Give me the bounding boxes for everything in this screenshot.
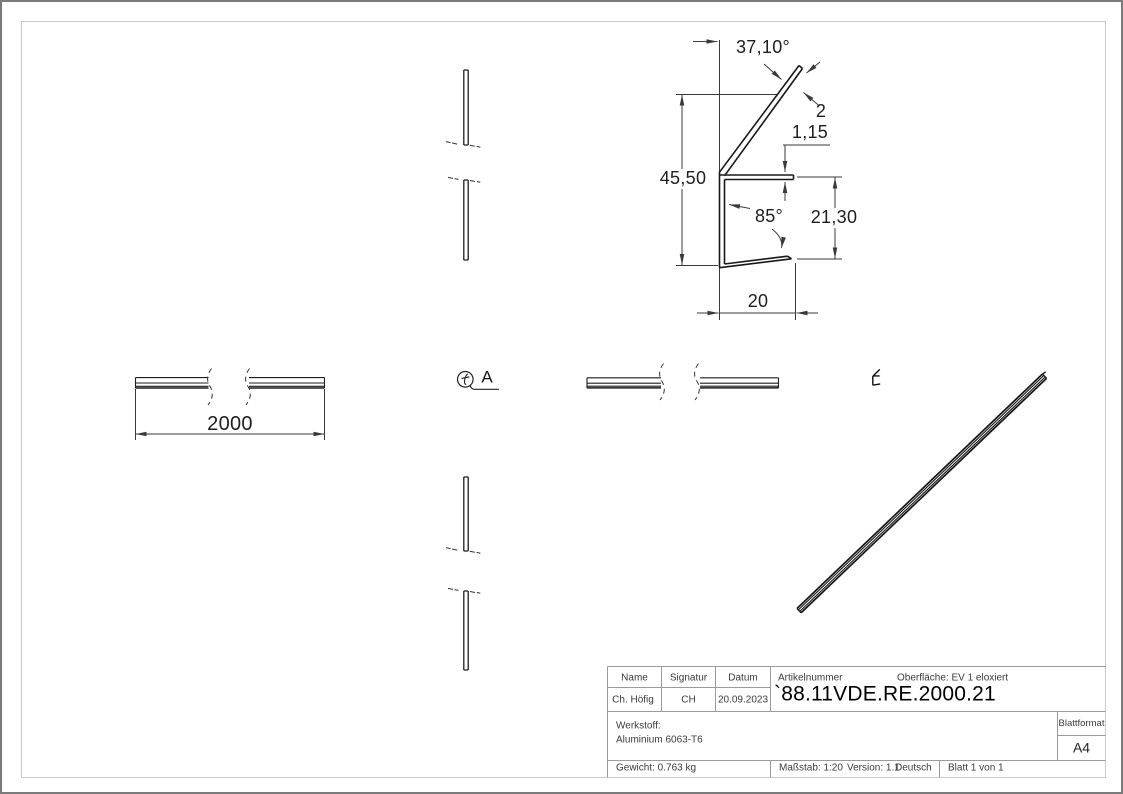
title-material-label: Werkstoff:	[616, 721, 661, 732]
dim-flange-thickness: 2	[816, 102, 826, 122]
bottom-view	[446, 477, 480, 670]
drawing-sheet: 37,10° 2 1,15 45,50 85° 21,30 20 2000 A …	[0, 0, 1123, 794]
title-signature-label: Signatur	[670, 673, 707, 684]
section-view-label: A	[481, 369, 492, 388]
title-weight: Gewicht: 0.763 kg	[616, 763, 696, 774]
dim-flange-angle: 37,10°	[736, 38, 790, 58]
title-signature-value: CH	[681, 695, 695, 706]
dim-channel-width: 20	[748, 292, 769, 312]
sheet-frame	[22, 22, 1106, 778]
dim-profile-length: 2000	[207, 413, 253, 435]
dim-channel-height: 21,30	[808, 208, 861, 228]
title-scale: Maßstab: 1:20	[779, 763, 843, 774]
title-sheet-count: Blatt 1 von 1	[948, 763, 1004, 774]
title-version: Version: 1.1	[847, 763, 900, 774]
end-view	[873, 369, 880, 385]
dim-total-height: 45,50	[657, 169, 710, 189]
section-view-marker	[458, 372, 500, 390]
title-name-value: Ch. Höfig	[612, 695, 654, 706]
title-language: Deutsch	[895, 763, 932, 774]
title-material-value: Aluminium 6063-T6	[616, 735, 703, 746]
title-article-number: `88.11VDE.RE.2000.21	[774, 682, 996, 705]
title-date-label: Datum	[728, 673, 757, 684]
rear-view	[587, 364, 779, 401]
top-view	[446, 70, 480, 260]
isometric-view	[797, 372, 1047, 613]
title-sheet-format-label: Blattformat	[1059, 718, 1105, 728]
title-date-value: 20.09.2023	[718, 695, 768, 706]
title-sheet-format-value: A4	[1073, 740, 1090, 755]
taper-symbol-icon	[462, 374, 470, 385]
dim-lip-angle: 85°	[755, 207, 783, 227]
dim-lip-thickness: 1,15	[792, 123, 828, 143]
title-name-label: Name	[621, 673, 648, 684]
